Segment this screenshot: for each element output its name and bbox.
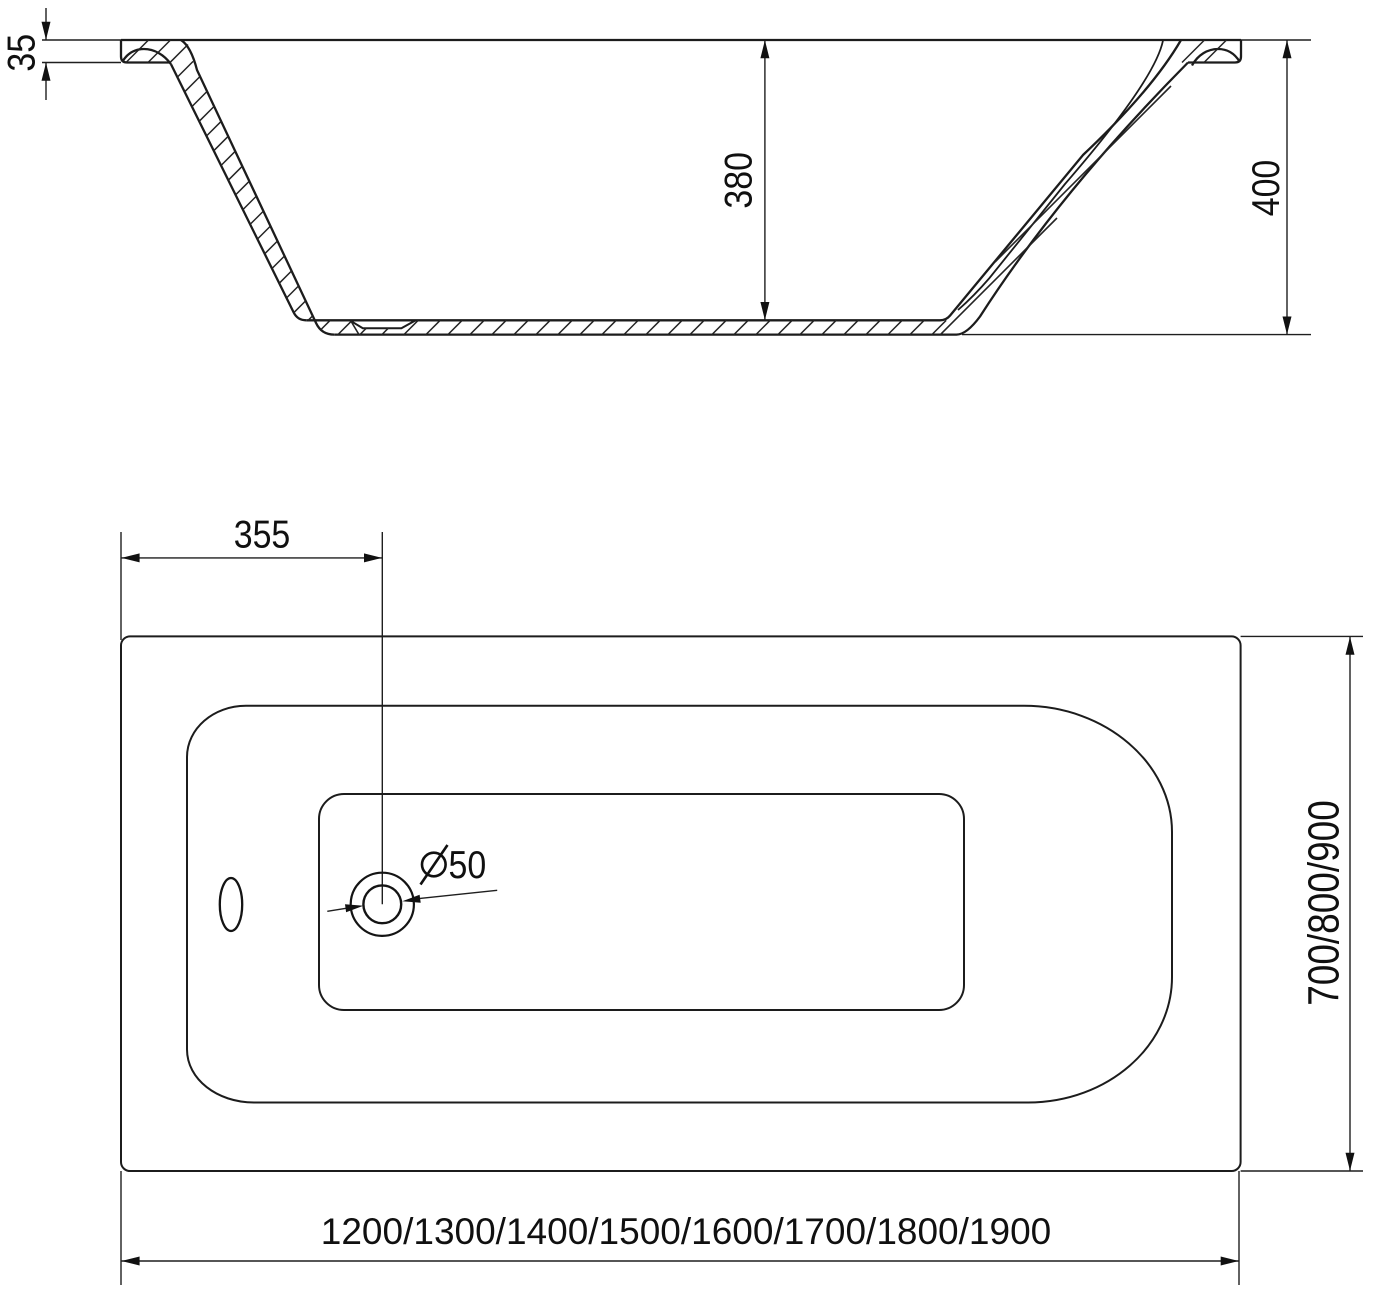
svg-text:355: 355 (234, 512, 291, 556)
svg-text:400: 400 (1244, 160, 1288, 217)
svg-text:35: 35 (0, 34, 43, 72)
svg-text:1200/1300/1400/1500/1600/1700/: 1200/1300/1400/1500/1600/1700/1800/1900 (321, 1211, 1051, 1252)
svg-text:380: 380 (716, 152, 760, 209)
svg-text:50: 50 (449, 843, 487, 887)
svg-text:700/800/900: 700/800/900 (1299, 800, 1349, 1006)
